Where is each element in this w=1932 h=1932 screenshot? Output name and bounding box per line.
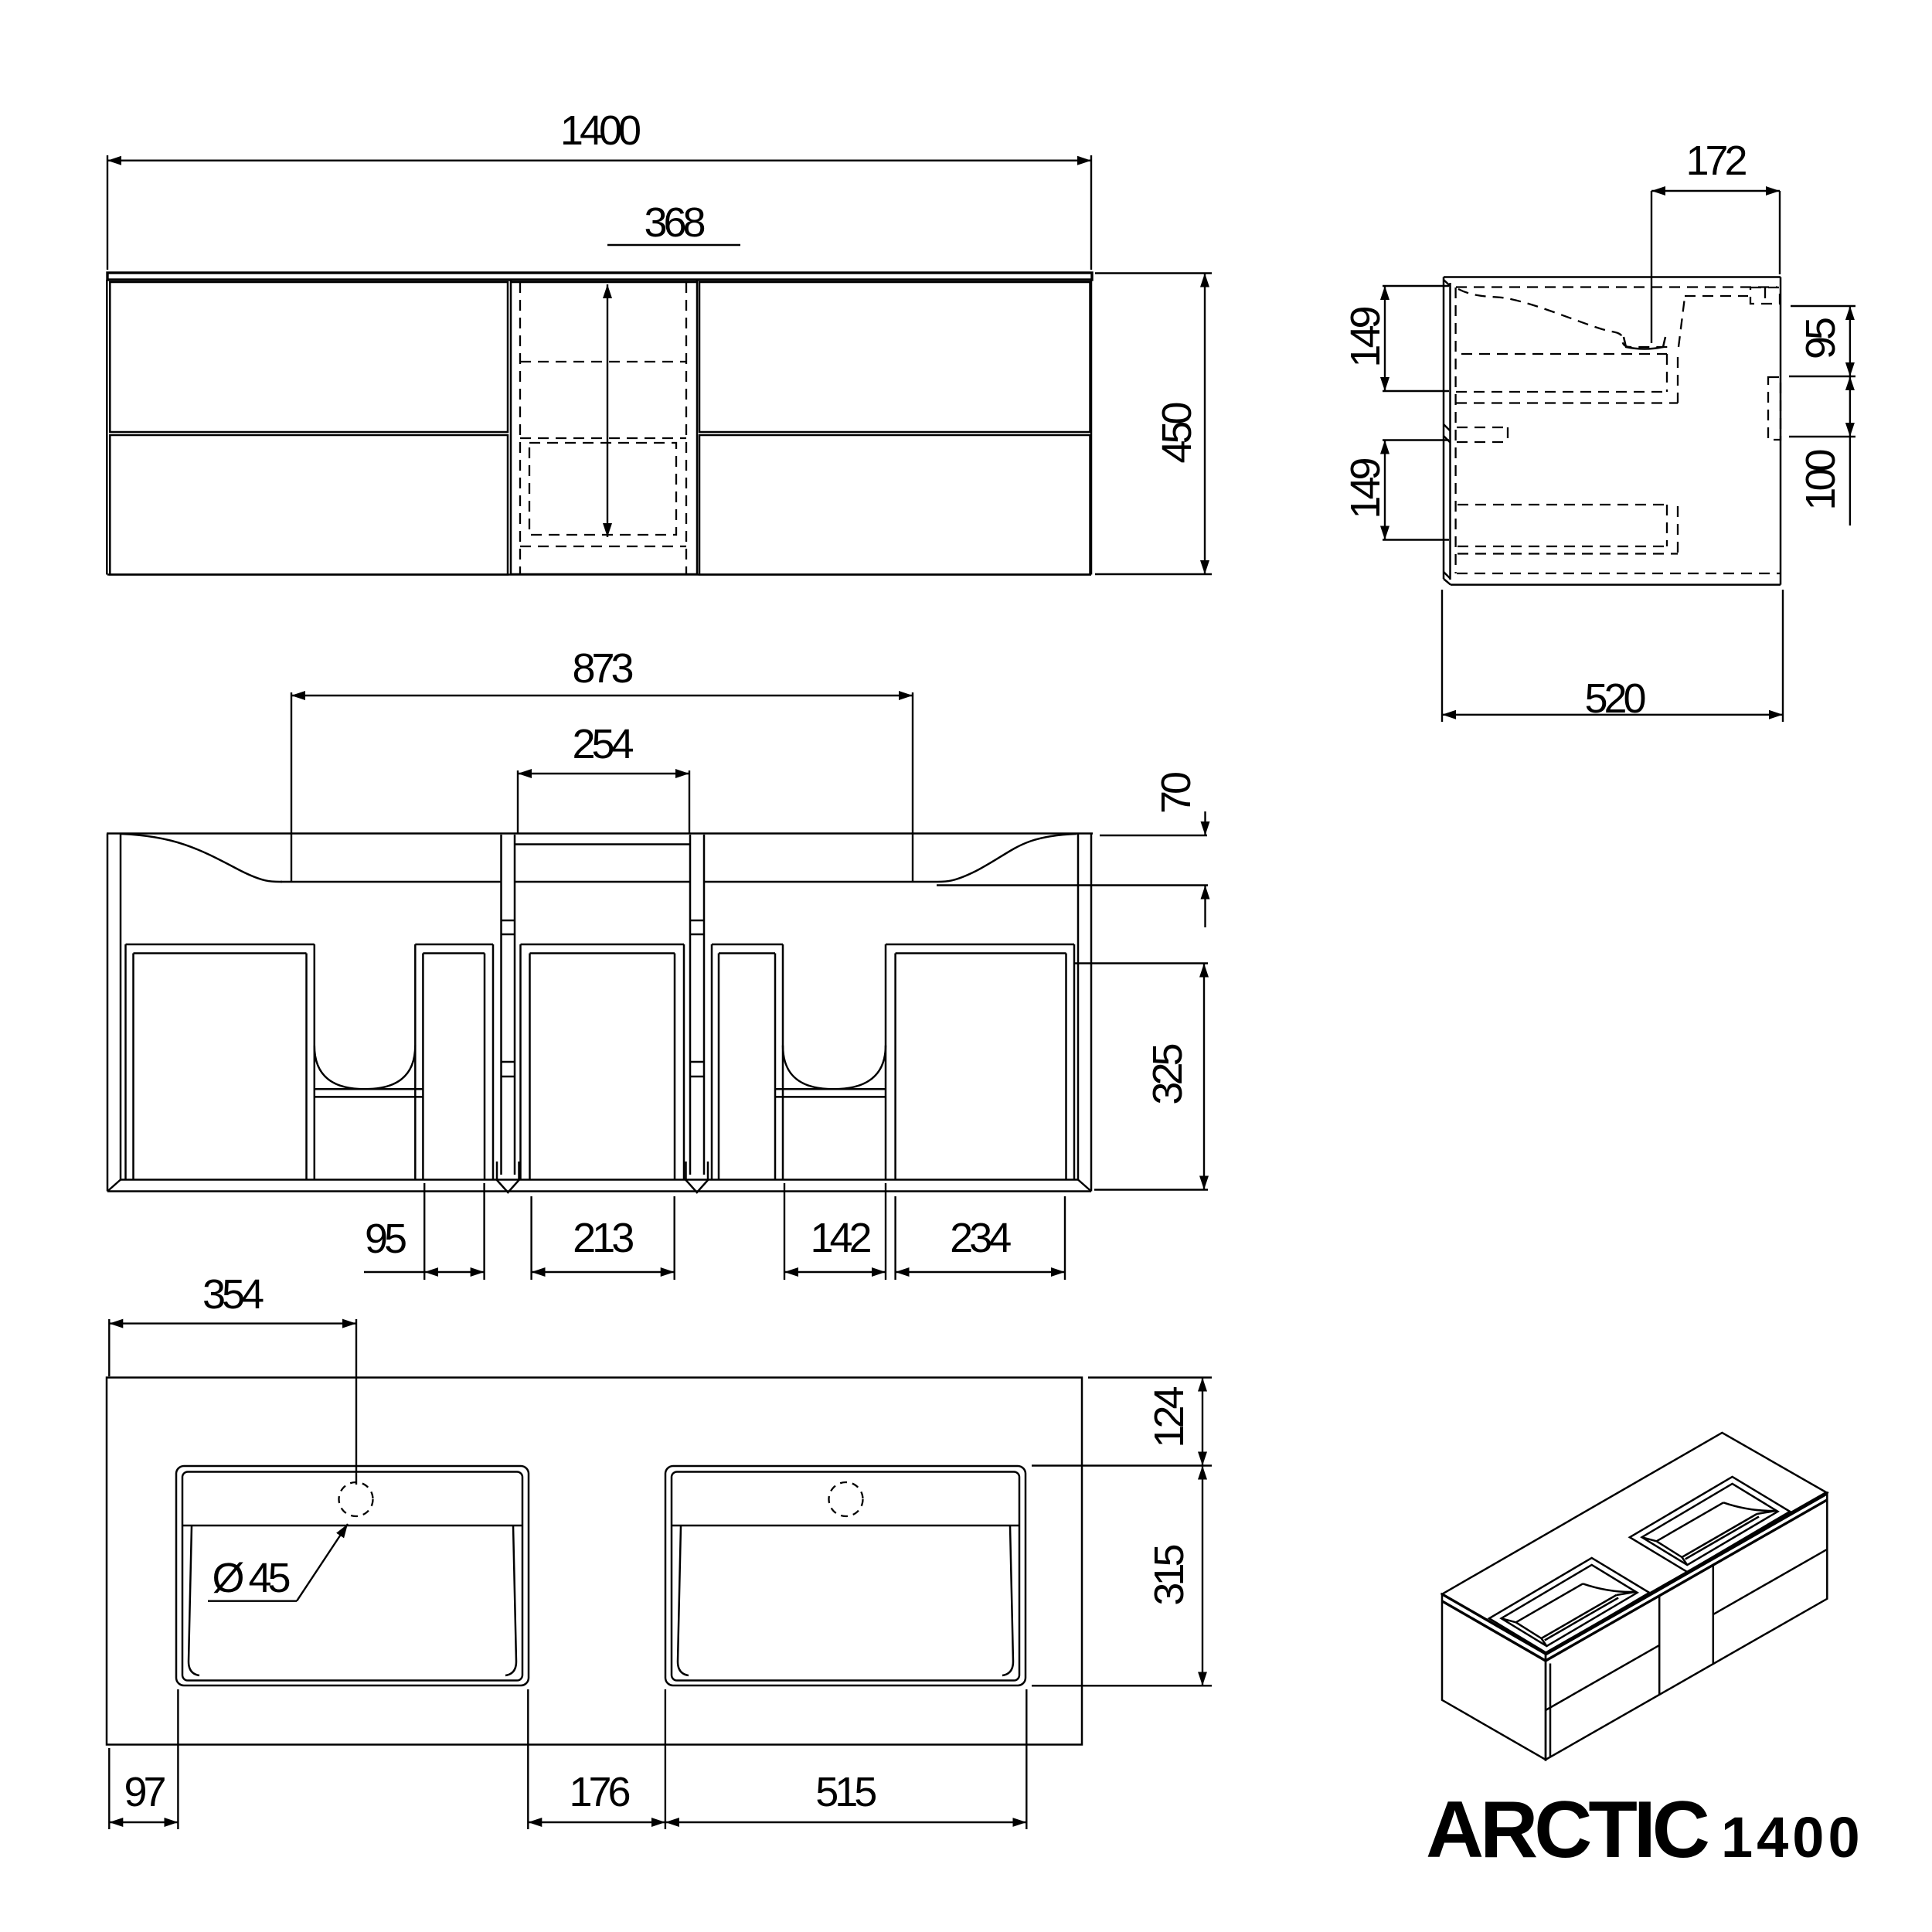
svg-text:450: 450 <box>1154 403 1200 463</box>
svg-text:70: 70 <box>1153 773 1199 814</box>
svg-text:234: 234 <box>950 1215 1011 1261</box>
svg-text:315: 315 <box>1146 1545 1192 1605</box>
svg-text:515: 515 <box>815 1769 876 1815</box>
svg-text:97: 97 <box>124 1769 165 1815</box>
svg-text:ARCTIC: ARCTIC <box>1426 1785 1709 1875</box>
svg-text:520: 520 <box>1584 675 1645 722</box>
svg-text:95: 95 <box>365 1216 406 1262</box>
svg-text:368: 368 <box>644 199 704 246</box>
svg-text:95: 95 <box>1798 318 1844 359</box>
svg-text:149: 149 <box>1342 307 1389 367</box>
svg-text:149: 149 <box>1342 458 1389 519</box>
svg-text:873: 873 <box>572 645 632 692</box>
svg-text:213: 213 <box>573 1215 633 1261</box>
svg-text:254: 254 <box>572 721 633 767</box>
svg-text:176: 176 <box>569 1769 629 1815</box>
svg-text:142: 142 <box>810 1215 870 1261</box>
svg-text:1400: 1400 <box>1721 1805 1864 1869</box>
svg-text:354: 354 <box>202 1271 264 1318</box>
svg-text:325: 325 <box>1145 1044 1191 1104</box>
svg-text:124: 124 <box>1146 1386 1192 1447</box>
svg-text:Ø 45: Ø 45 <box>212 1555 289 1601</box>
svg-text:100: 100 <box>1798 450 1844 510</box>
svg-text:1400: 1400 <box>560 107 640 154</box>
svg-text:172: 172 <box>1685 138 1746 184</box>
